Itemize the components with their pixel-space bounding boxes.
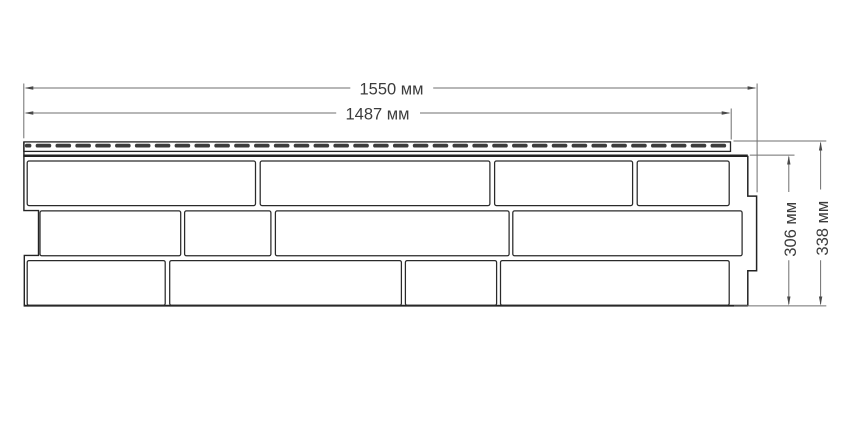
svg-text:338 мм: 338 мм [814,201,832,256]
svg-text:1550 мм: 1550 мм [360,81,424,99]
svg-text:1487 мм: 1487 мм [346,106,410,124]
svg-text:306 мм: 306 мм [782,202,800,257]
